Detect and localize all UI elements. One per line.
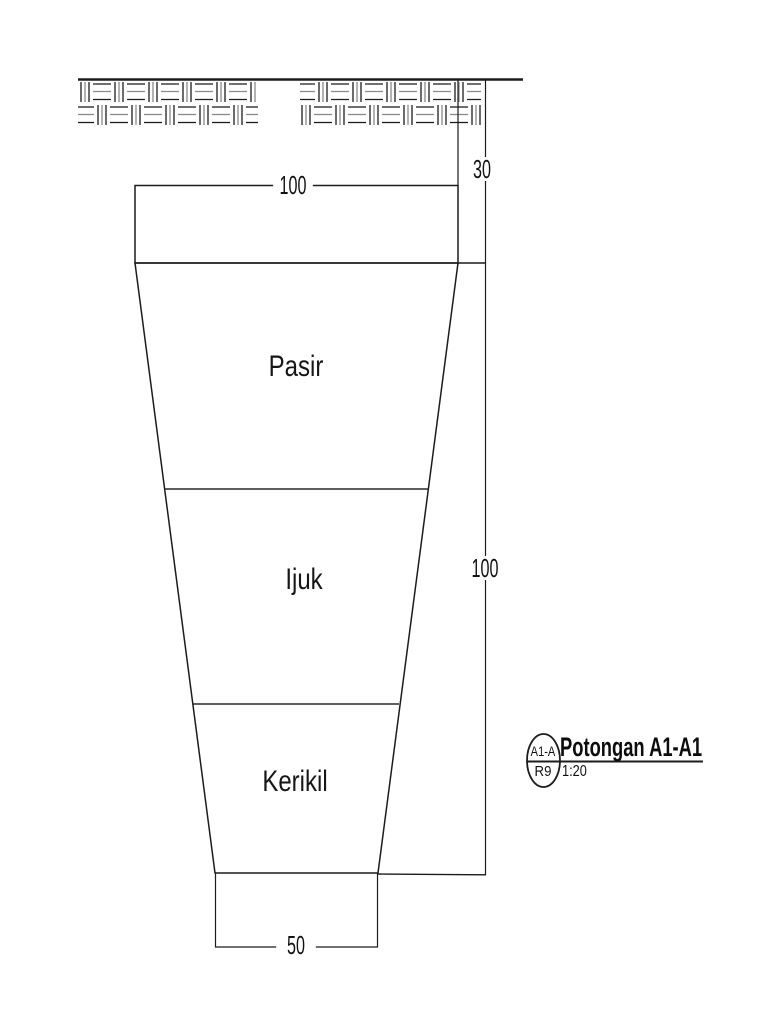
bottom-edge-extension <box>378 874 486 875</box>
layer-label-kerikil: Kerikil <box>239 765 351 799</box>
drawing-scale: 1:20 <box>562 764 587 779</box>
dimension-bottom-width: 50 <box>276 933 316 957</box>
dimension-cover-depth: 30 <box>462 157 502 181</box>
section-drawing-linework <box>0 0 768 1024</box>
ground-hatch-left <box>78 81 258 127</box>
layer-label-pasir: Pasir <box>240 350 352 384</box>
layer-label-ijuk: Ijuk <box>248 563 360 597</box>
ground-hatch-right <box>300 81 481 127</box>
dimension-body-height: 100 <box>465 556 505 580</box>
drawing-title: Potongan A1-A1 <box>560 735 702 760</box>
dimension-top-width: 100 <box>273 173 313 197</box>
cad-drawing-page: 100 30 100 50 Pasir Ijuk Kerikil A1-A R9… <box>0 0 768 1024</box>
